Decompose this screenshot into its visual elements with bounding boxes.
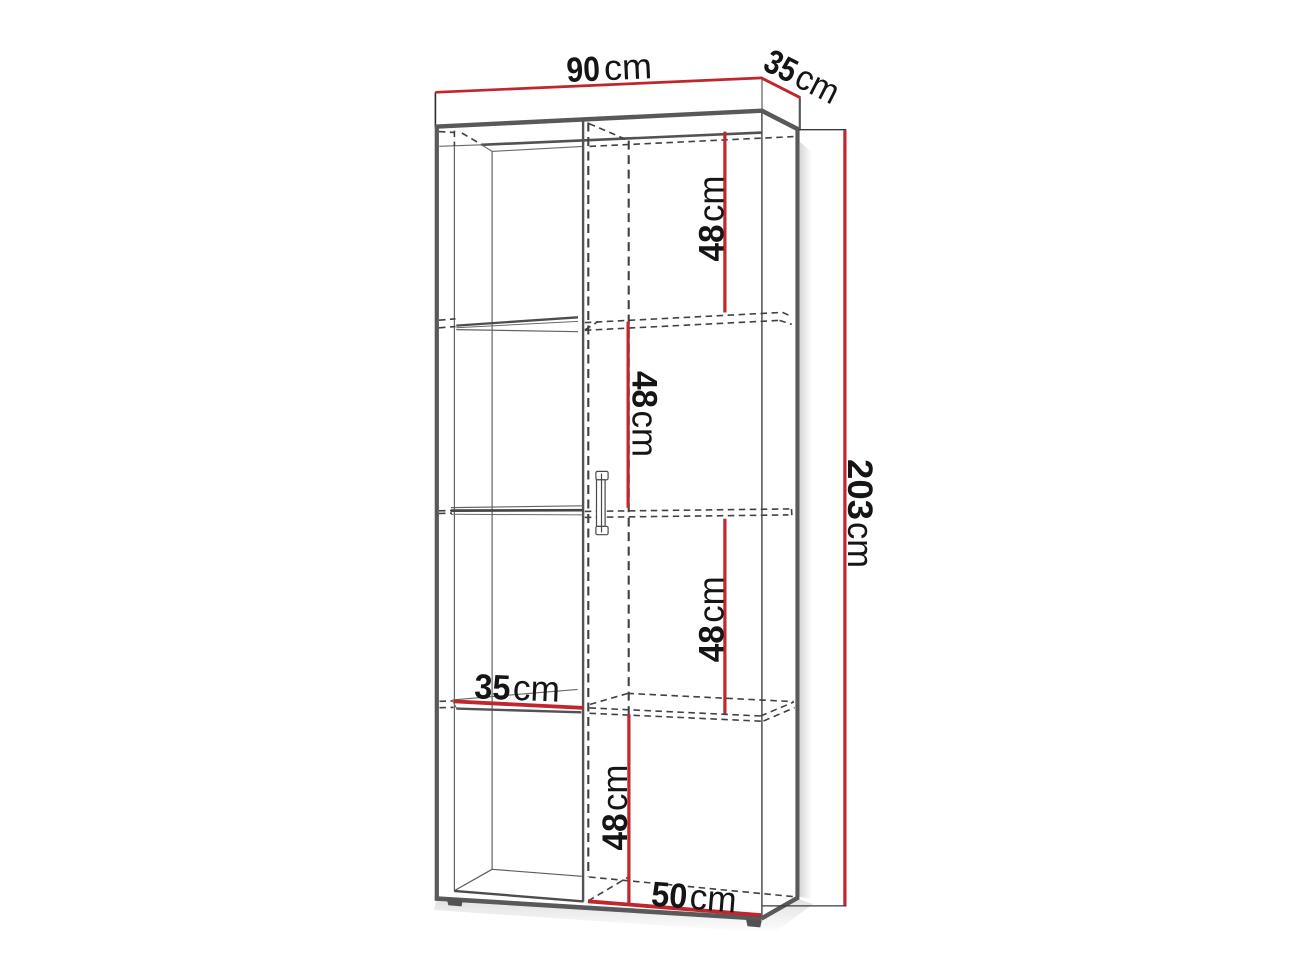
svg-text:cm: cm	[512, 667, 561, 710]
svg-text:cm: cm	[840, 522, 881, 568]
svg-text:48: 48	[596, 814, 635, 851]
svg-text:cm: cm	[624, 411, 665, 458]
svg-text:cm: cm	[688, 876, 738, 921]
svg-text:cm: cm	[691, 576, 732, 623]
svg-text:cm: cm	[691, 176, 732, 223]
svg-text:35: 35	[474, 667, 512, 707]
svg-text:48: 48	[693, 225, 732, 262]
svg-text:cm: cm	[594, 765, 635, 812]
svg-text:48: 48	[693, 625, 732, 662]
svg-text:203: 203	[840, 459, 879, 520]
svg-text:50: 50	[650, 875, 689, 917]
svg-text:90: 90	[566, 50, 601, 90]
svg-text:cm: cm	[603, 45, 653, 88]
svg-text:48: 48	[624, 371, 663, 408]
